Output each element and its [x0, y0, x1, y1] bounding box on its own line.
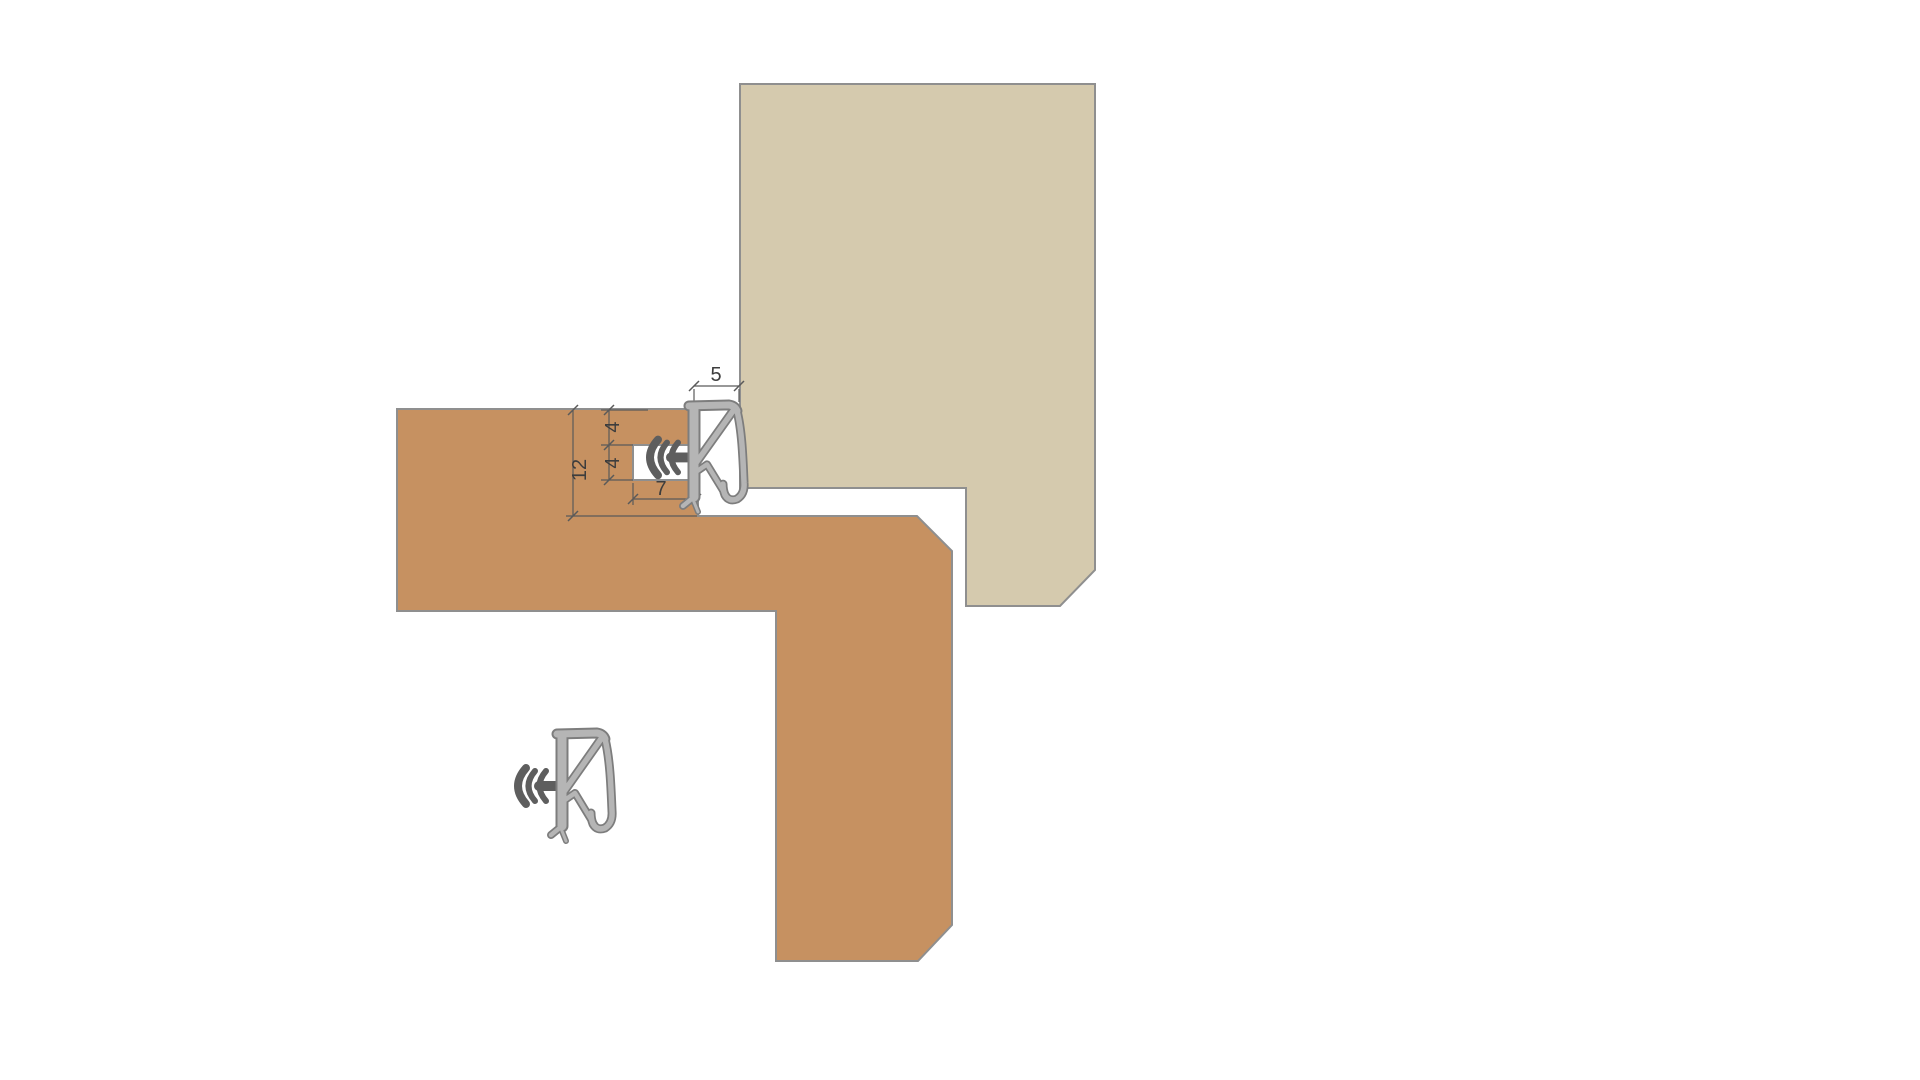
frame-section — [397, 409, 952, 961]
dim-label-rebate-depth: 12 — [569, 459, 591, 481]
dim-label-seal-width: 5 — [710, 364, 721, 386]
weatherseal-free-state — [518, 733, 612, 841]
dim-label-groove-depth: 7 — [655, 478, 666, 500]
dimension-seal-width: 5 — [689, 364, 744, 403]
technical-drawing-canvas: 5 4 4 12 7 — [0, 0, 1920, 1080]
dim-label-groove-top-offset: 4 — [602, 421, 624, 432]
seal-cross-section-diagram: 5 4 4 12 7 — [0, 0, 1920, 1080]
dim-label-groove-height: 4 — [602, 457, 624, 468]
